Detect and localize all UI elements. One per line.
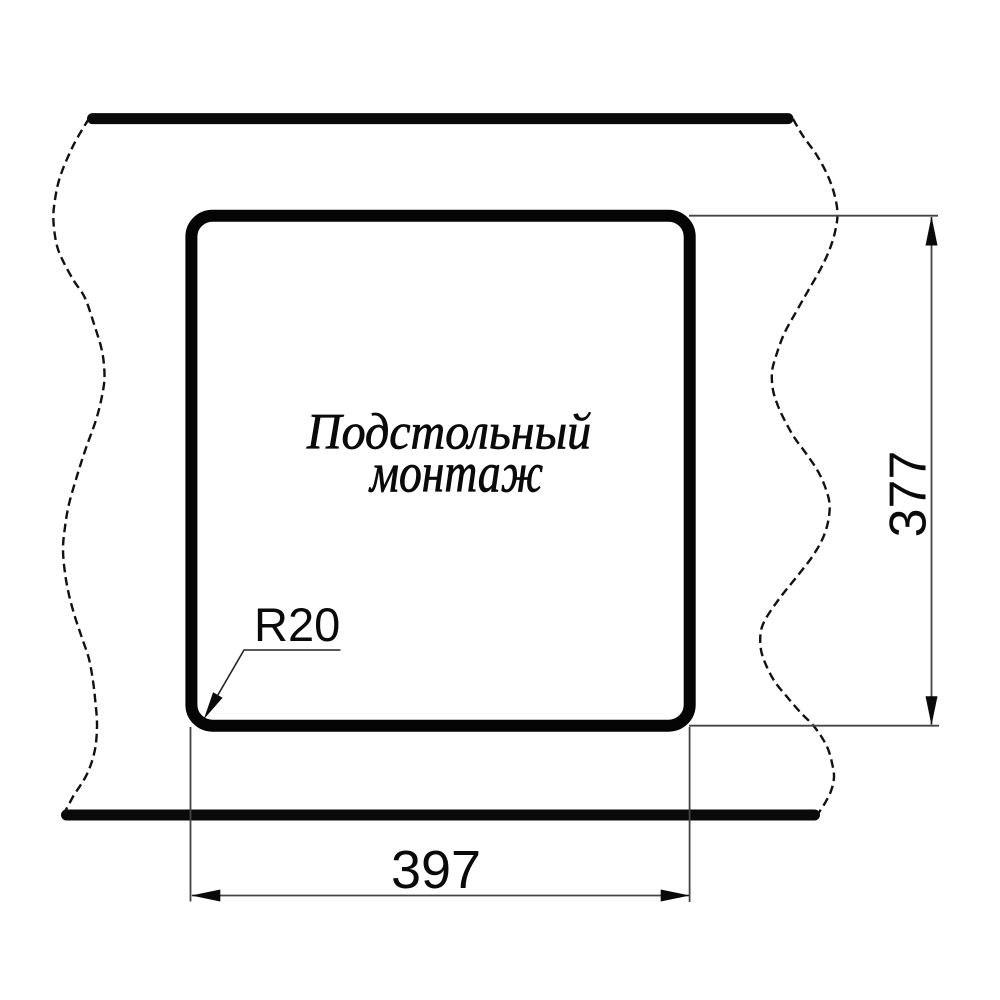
svg-text:монтаж: монтаж	[368, 443, 543, 504]
svg-text:397: 397	[391, 840, 481, 900]
svg-text:377: 377	[880, 451, 938, 538]
svg-text:R20: R20	[254, 598, 340, 651]
